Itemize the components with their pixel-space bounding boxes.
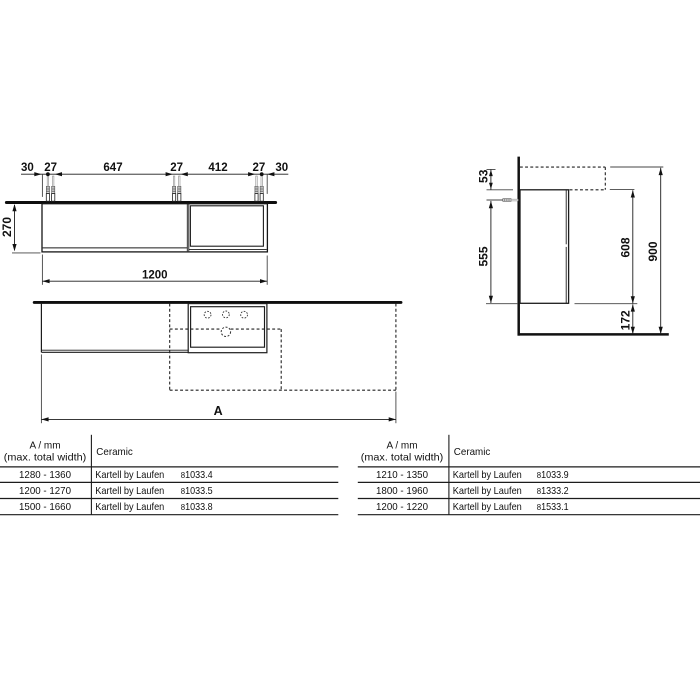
svg-text:53: 53	[477, 169, 491, 183]
svg-text:1200 - 1220: 1200 - 1220	[376, 502, 428, 513]
svg-text:27: 27	[44, 162, 57, 174]
svg-text:81033.9: 81033.9	[537, 470, 569, 481]
svg-text:Ceramic: Ceramic	[96, 447, 133, 458]
svg-text:270: 270	[0, 217, 14, 237]
svg-text:1280 - 1360: 1280 - 1360	[19, 470, 71, 481]
svg-text:1500 - 1660: 1500 - 1660	[19, 502, 71, 513]
svg-text:555: 555	[477, 246, 491, 266]
svg-text:A / mm: A / mm	[30, 441, 61, 452]
svg-text:A: A	[214, 404, 223, 418]
svg-text:30: 30	[275, 162, 288, 174]
svg-text:172: 172	[618, 310, 632, 330]
svg-text:(max. total width): (max. total width)	[361, 452, 444, 463]
svg-text:Kartell by Laufen: Kartell by Laufen	[95, 486, 164, 497]
svg-text:Kartell by Laufen: Kartell by Laufen	[95, 502, 164, 513]
svg-text:647: 647	[103, 162, 122, 174]
svg-text:412: 412	[208, 162, 227, 174]
svg-text:1800 - 1960: 1800 - 1960	[376, 486, 428, 497]
svg-text:(max. total width): (max. total width)	[4, 452, 87, 463]
svg-text:Kartell by Laufen: Kartell by Laufen	[453, 470, 522, 481]
svg-text:81033.5: 81033.5	[181, 486, 213, 497]
svg-text:27: 27	[170, 162, 183, 174]
svg-text:30: 30	[21, 162, 34, 174]
svg-text:1200 - 1270: 1200 - 1270	[19, 486, 71, 497]
svg-text:81533.1: 81533.1	[537, 502, 569, 513]
svg-text:1210 - 1350: 1210 - 1350	[376, 470, 428, 481]
svg-text:Kartell by Laufen: Kartell by Laufen	[95, 470, 164, 481]
svg-text:608: 608	[618, 237, 632, 257]
svg-text:27: 27	[253, 162, 266, 174]
svg-text:81333.2: 81333.2	[537, 486, 569, 497]
svg-text:Kartell by Laufen: Kartell by Laufen	[453, 486, 522, 497]
svg-text:1200: 1200	[142, 269, 168, 281]
svg-text:81033.8: 81033.8	[181, 502, 213, 513]
svg-text:Kartell by Laufen: Kartell by Laufen	[453, 502, 522, 513]
svg-text:900: 900	[646, 241, 660, 261]
svg-text:A / mm: A / mm	[387, 441, 418, 452]
svg-text:81033.4: 81033.4	[181, 470, 213, 481]
svg-text:Ceramic: Ceramic	[454, 447, 491, 458]
